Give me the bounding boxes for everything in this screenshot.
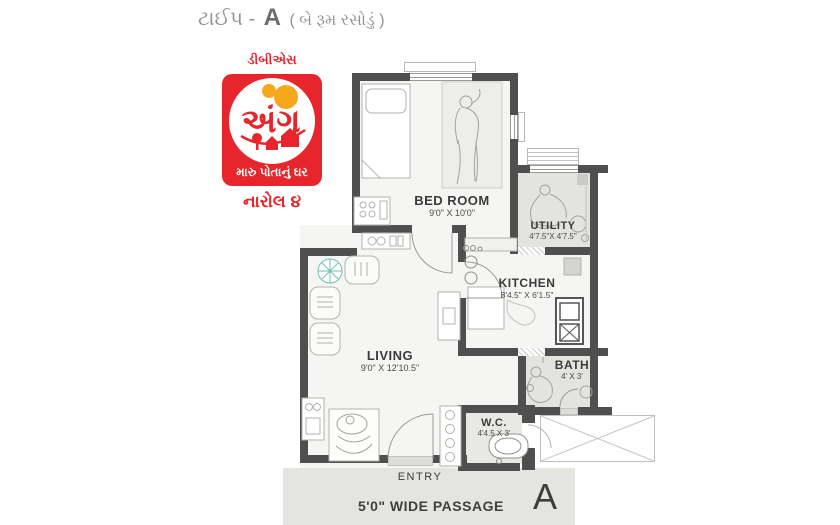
- wall-segment: [352, 225, 412, 233]
- title-subtitle: ( બે રૂમ રસોડું ): [289, 12, 384, 29]
- logo-company-name: ડીબીએસ: [222, 52, 322, 68]
- bedroom-dims: 9'0" X 10'0": [414, 208, 490, 218]
- wall-segment: [458, 348, 518, 356]
- brand-logo: અંગ મારુ પોતાનું ઘર: [222, 74, 322, 186]
- brand-logo-emblem: અંગ: [229, 78, 315, 164]
- brand-logo-art: અંગ: [229, 78, 315, 164]
- hatched-open-area: [540, 415, 655, 462]
- wall-segment: [545, 348, 608, 356]
- utility-window-louver: [527, 148, 579, 165]
- kitchen-dims: 8'4.5" X 6'1.5": [499, 290, 556, 300]
- wall-segment: [458, 405, 466, 471]
- utility-dims: 4'7.5"X 4'7.5": [529, 232, 576, 241]
- kitchen-name: KITCHEN: [499, 276, 556, 290]
- living-name: LIVING: [361, 348, 419, 363]
- logo-project-name: નારોલ ૪: [222, 192, 322, 212]
- wall-segment: [352, 73, 360, 232]
- wall-segment: [510, 73, 518, 115]
- bedroom-name: BED ROOM: [414, 193, 490, 208]
- utility-door-opening: [518, 247, 545, 255]
- wall-segment: [545, 247, 598, 255]
- bath-name: BATH: [555, 358, 589, 372]
- bedroom-window: [410, 73, 472, 81]
- utility-window: [530, 165, 578, 173]
- passage-label: 5'0" WIDE PASSAGE: [358, 498, 504, 514]
- kitchen-label: KITCHEN 8'4.5" X 6'1.5": [499, 276, 556, 300]
- title-type-letter: A: [260, 4, 285, 31]
- wc-dims: 4'4.5 X 3': [478, 429, 511, 438]
- wall-segment: [458, 405, 522, 413]
- wall-segment: [300, 455, 388, 463]
- bath-door-sill: [560, 408, 578, 415]
- page-title: ટાઈપ - A ( બે રૂમ રસોડું ): [198, 4, 385, 32]
- wc-name: W.C.: [478, 417, 511, 429]
- wall-segment: [522, 448, 535, 470]
- bedroom-side-ledge: [518, 112, 525, 142]
- living-dims: 9'0" X 12'10.5": [361, 363, 419, 373]
- bath-dims: 4' X 3': [555, 372, 589, 381]
- wall-segment: [300, 248, 308, 462]
- bedroom-label: BED ROOM 9'0" X 10'0": [414, 193, 490, 218]
- unit-letter: A: [533, 476, 557, 518]
- logo-tagline: મારુ પોતાનું ઘર: [222, 165, 322, 180]
- entry-label: ENTRY: [398, 471, 443, 483]
- wall-segment: [514, 165, 530, 173]
- wall-segment: [510, 139, 518, 254]
- bath-label: BATH 4' X 3': [555, 358, 589, 381]
- living-label: LIVING 9'0" X 12'10.5": [361, 348, 419, 373]
- wall-segment: [578, 407, 612, 415]
- wall-segment: [590, 165, 598, 415]
- wall-segment: [300, 248, 357, 256]
- utility-name: UTILITY: [529, 220, 576, 232]
- floor-plan-page: ટાઈપ - A ( બે રૂમ રસોડું ) ડીબીએસ અંગ મા…: [0, 0, 840, 525]
- utility-label: UTILITY 4'7.5"X 4'7.5": [529, 220, 576, 241]
- kitchen-service-opening: [518, 348, 545, 356]
- wall-segment: [458, 298, 466, 355]
- wall-segment: [522, 405, 535, 423]
- wall-segment: [458, 225, 466, 262]
- bedroom-side-window: [510, 115, 518, 139]
- wall-segment: [352, 73, 410, 81]
- title-type-word: ટાઈપ -: [198, 8, 255, 30]
- wall-segment: [458, 463, 520, 471]
- bedroom-window-ledge: [404, 62, 476, 72]
- entry-door-sill: [388, 456, 433, 466]
- wc-label: W.C. 4'4.5 X 3': [478, 417, 511, 438]
